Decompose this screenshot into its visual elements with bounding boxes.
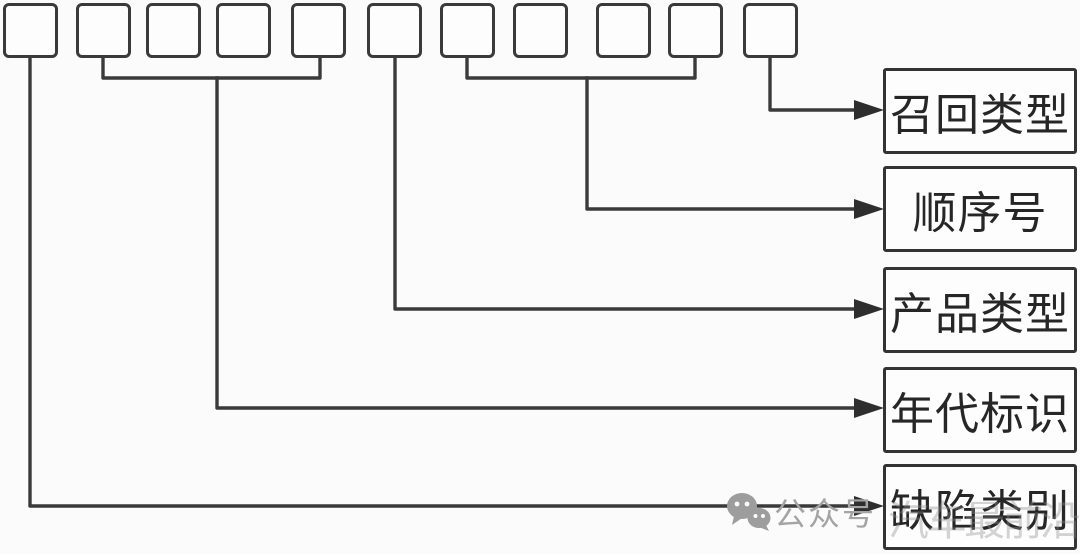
connector-era-mark <box>217 78 856 408</box>
label-recall-type-text: 召回类型 <box>890 79 1070 143</box>
label-defect-category-text: 缺陷类别 <box>890 475 1070 539</box>
code-box-3 <box>146 3 201 58</box>
label-recall-type: 召回类型 <box>883 68 1077 154</box>
label-defect-category: 缺陷类别 <box>883 464 1077 550</box>
arrowhead-product-type <box>854 299 884 319</box>
code-box-6 <box>367 3 422 58</box>
arrowhead-sequence-number <box>854 199 884 219</box>
code-box-4 <box>216 3 271 58</box>
label-era-mark: 年代标识 <box>883 367 1077 453</box>
code-box-9 <box>596 3 651 58</box>
code-box-2 <box>76 3 131 58</box>
bracket-sequence-number <box>467 57 695 78</box>
label-era-mark-text: 年代标识 <box>890 378 1070 442</box>
label-sequence-number: 顺序号 <box>883 166 1077 252</box>
connector-defect-category <box>30 57 856 506</box>
label-product-type: 产品类型 <box>883 267 1077 353</box>
code-box-5 <box>291 3 346 58</box>
code-box-11 <box>743 3 798 58</box>
arrowhead-defect-category <box>854 496 884 516</box>
label-sequence-number-text: 顺序号 <box>913 177 1048 241</box>
connector-recall-type <box>770 57 856 110</box>
connector-product-type <box>395 57 856 309</box>
code-box-8 <box>513 3 568 58</box>
bracket-era-mark <box>103 57 320 78</box>
arrowhead-era-mark <box>854 398 884 418</box>
arrowhead-recall-type <box>854 100 884 120</box>
label-product-type-text: 产品类型 <box>890 278 1070 342</box>
code-box-7 <box>440 3 495 58</box>
code-box-10 <box>668 3 723 58</box>
code-structure-diagram: 召回类型 顺序号 产品类型 年代标识 缺陷类别 公众号 汽车最前沿 <box>0 0 1080 554</box>
connector-sequence-number <box>587 78 856 209</box>
code-box-1 <box>3 3 58 58</box>
